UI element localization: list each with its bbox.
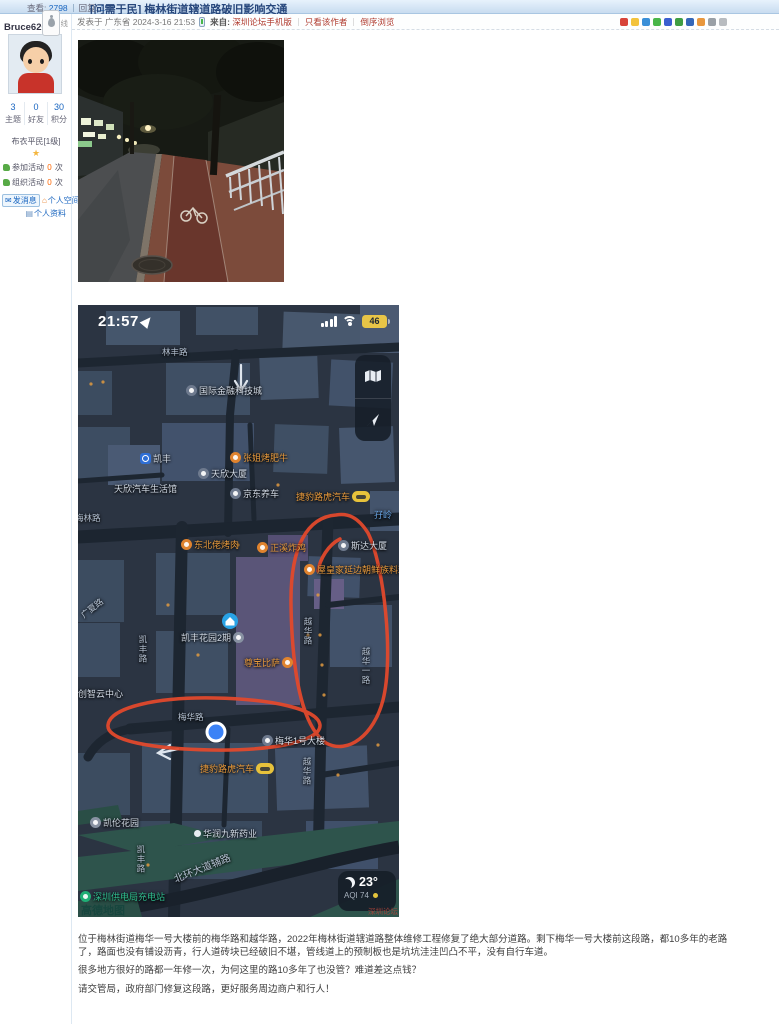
rank-star-icon: ★	[0, 148, 72, 159]
map-poi-label: 梅华路	[178, 711, 204, 723]
share-qq-icon[interactable]	[642, 18, 650, 26]
only-author-link[interactable]: 只看该作者	[305, 17, 348, 27]
home-icon: ⌂	[42, 196, 47, 205]
map-poi-label: 华润九新药业	[194, 827, 257, 840]
map-poi-label: 凯丰	[140, 452, 171, 465]
map-poi-label: 凯丰路	[135, 845, 147, 874]
home-poi-icon	[90, 817, 101, 828]
divider	[73, 4, 74, 12]
map-poi-label: 捷豹路虎汽车	[200, 762, 274, 775]
restaurant-poi-icon	[257, 542, 268, 553]
post-time: 发表于 广东省 2024-3-16 21:53	[77, 17, 195, 27]
share-copylink-icon[interactable]	[708, 18, 716, 26]
map-poi-label: 梅林路	[78, 512, 101, 524]
signal-icon	[321, 316, 338, 327]
author-stats: 3主题0好友30积分	[2, 102, 70, 125]
runner-icon	[3, 164, 10, 171]
restaurant-poi-icon	[181, 539, 192, 550]
profile-row: ▤个人资料	[0, 208, 66, 219]
map-poi-label: 创智云中心	[78, 687, 123, 700]
post-image-map[interactable]: 21:57 46 林丰路国际金融科技城凯丰张姐烤肥牛天欣大厦天欣汽车生活馆京东养…	[78, 305, 399, 917]
share-more-icon[interactable]	[719, 18, 727, 26]
divider	[298, 18, 299, 26]
map-poi-label: 京东养车	[230, 487, 279, 500]
car-poi-icon	[256, 763, 274, 774]
building-poi-icon	[230, 488, 241, 499]
map-poi-label: 捷豹路虎汽车	[296, 490, 370, 503]
share-tieba-icon[interactable]	[664, 18, 672, 26]
map-poi-label: 天欣大厦	[198, 467, 247, 480]
avatar-face	[23, 47, 49, 73]
post-paragraph: 请交管局，政府部门修复这段路，更好服务周边商户和行人！	[78, 984, 742, 997]
map-poi-label: 越华路	[302, 617, 314, 646]
map-layers-icon	[364, 369, 382, 383]
activity-row: 组织活动 0 次	[3, 177, 72, 188]
avatar-shirt	[18, 73, 54, 94]
map-poi-label: 正溪炸鸡	[257, 541, 306, 554]
post-paragraph: 很多地方很好的路都一年修一次，为何这里的路10多年了也没管？难道差这点钱？	[78, 965, 742, 978]
phone-badge-icon	[42, 10, 60, 36]
building-poi-icon	[186, 385, 197, 396]
map-poi-label: 林丰路	[162, 346, 188, 358]
map-poi-label: 凯丰路	[137, 635, 149, 664]
home-poi-icon	[233, 632, 244, 643]
map-poi-label: 凯丰花园2期	[181, 631, 244, 644]
post-paragraph: 位于梅林街道梅华一号大楼前的梅华路和越华路，2022年梅林街道辖道路整体维修工程…	[78, 934, 742, 959]
charge-poi-icon	[80, 891, 91, 902]
share-taobao-icon[interactable]	[697, 18, 705, 26]
share-weibo-icon[interactable]	[620, 18, 628, 26]
map-poi-label: 凯伦花园	[90, 816, 139, 829]
status-icons: 46	[321, 315, 388, 328]
stat-好友[interactable]: 0好友	[25, 102, 48, 125]
map-poi-label: 尊宝比萨	[244, 656, 293, 669]
envelope-icon: ✉	[5, 196, 12, 205]
send-message-button[interactable]: ✉发消息	[2, 194, 40, 207]
from-link[interactable]: 深圳论坛手机版	[232, 17, 292, 27]
share-wechat-icon[interactable]	[653, 18, 661, 26]
weather-widget: 23° AQI 74	[338, 871, 396, 911]
divider	[353, 18, 354, 26]
post-photo-street[interactable]	[78, 40, 284, 282]
share-douban-icon[interactable]	[675, 18, 683, 26]
map-poi-label: 越华一路	[360, 647, 372, 685]
mobile-post-icon	[199, 17, 205, 27]
building-poi-icon	[198, 468, 209, 479]
author-rank: 布衣平民[1级]	[0, 136, 72, 147]
map-layers-button[interactable]	[355, 355, 391, 399]
map-poi-label: 屋皇家延边朝鲜族料理	[304, 563, 399, 576]
pizza-poi-icon	[282, 657, 293, 668]
map-poi-label: 斯达大厦	[338, 539, 387, 552]
map-poi-label: 东北佬烤肉	[181, 538, 239, 551]
building-poi-icon	[338, 540, 349, 551]
map-poi-label: 越华路	[301, 757, 313, 786]
amap-watermark: 高德地图	[81, 902, 125, 917]
map-poi-label: 国际金融科技城	[186, 384, 262, 397]
author-sidebar: Bruce626 离线 3主题0好友30积分 布衣平民[1级] ★ 参加活动 0…	[0, 14, 72, 1024]
author-links: ✉发消息 ⌂个人空间	[2, 194, 72, 207]
locate-button[interactable]	[355, 399, 391, 442]
avatar-eye	[28, 59, 32, 64]
post-body-text: 位于梅林街道梅华一号大楼前的梅华路和越华路，2022年梅林街道辖道路整体维修工程…	[78, 934, 742, 1002]
share-qzone-icon[interactable]	[631, 18, 639, 26]
locate-arrow-icon	[365, 412, 381, 428]
activity-row: 参加活动 0 次	[3, 162, 72, 173]
car-poi-icon	[352, 491, 370, 502]
metro-poi-icon	[140, 453, 151, 464]
street-photo-graphic	[78, 40, 284, 282]
profile-link[interactable]: 个人资料	[34, 209, 66, 218]
id-card-icon: ▤	[25, 209, 33, 218]
thread-title-bar: 查看: 2798回复: 1 [问需于民] 梅林街道辖道路破旧影响交通	[0, 0, 779, 14]
stat-主题[interactable]: 3主题	[2, 102, 25, 125]
restaurant-poi-icon	[230, 452, 241, 463]
aqi-value: AQI 74	[344, 891, 369, 900]
battery-icon: 46	[362, 315, 387, 328]
map-poi-label: 张姐烤肥牛	[230, 451, 288, 464]
status-time: 21:57	[98, 313, 139, 330]
forum-watermark: 深圳论坛	[368, 906, 398, 917]
share-renren-icon[interactable]	[686, 18, 694, 26]
post-meta-row: 发表于 广东省 2024-3-16 21:53来自: 深圳论坛手机版只看该作者倒…	[72, 14, 779, 30]
restaurant-poi-icon	[304, 564, 315, 575]
runner-icon	[3, 179, 10, 186]
forum-thread-page: 查看: 2798回复: 1 [问需于民] 梅林街道辖道路破旧影响交通 发表于 广…	[0, 0, 779, 1024]
aqi-level-dot	[373, 893, 378, 898]
building-poi-icon	[262, 735, 273, 746]
map-controls	[355, 355, 391, 441]
sort-order-link[interactable]: 倒序浏览	[360, 17, 394, 27]
map-poi-label: 孖岭	[374, 508, 392, 521]
wifi-icon	[342, 316, 357, 327]
share-icon-strip	[620, 18, 727, 26]
personal-space-link[interactable]: 个人空间	[48, 196, 80, 205]
avatar[interactable]	[8, 34, 62, 94]
stat-积分[interactable]: 30积分	[48, 102, 70, 125]
author-username[interactable]: Bruce626	[4, 22, 47, 33]
dot-poi-icon	[194, 830, 201, 837]
from-label: 来自:	[210, 17, 230, 27]
map-poi-label: 梅华1号大楼	[262, 734, 325, 747]
activity-stats: 参加活动 0 次组织活动 0 次	[3, 162, 72, 192]
map-poi-label: 天欣汽车生活馆	[114, 482, 177, 495]
moon-icon	[344, 877, 355, 888]
avatar-eye	[40, 59, 44, 64]
temperature: 23°	[359, 875, 378, 889]
